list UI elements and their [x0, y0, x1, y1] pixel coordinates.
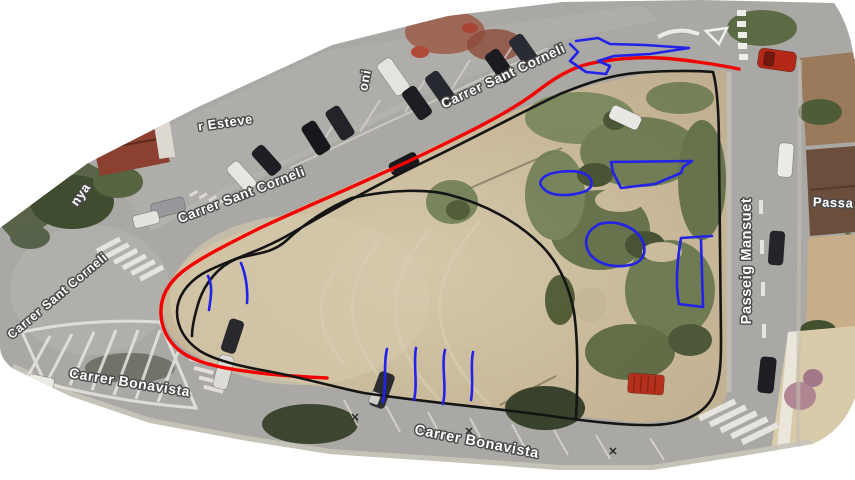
blue-tick [443, 350, 445, 404]
light-dirt-patch [170, 215, 430, 385]
map-canvas[interactable]: r Esteve nya Carrer Sant Corneli Carrer … [0, 0, 855, 480]
blue-tick [471, 352, 473, 400]
street-label-mansuet: Passeig Mansuet [739, 198, 755, 325]
satellite-photo [0, 0, 855, 480]
annotated-satellite-map: r Esteve nya Carrer Sant Corneli Carrer … [0, 0, 855, 480]
blue-tick [414, 348, 416, 400]
street-label-passa: Passa [813, 194, 854, 210]
